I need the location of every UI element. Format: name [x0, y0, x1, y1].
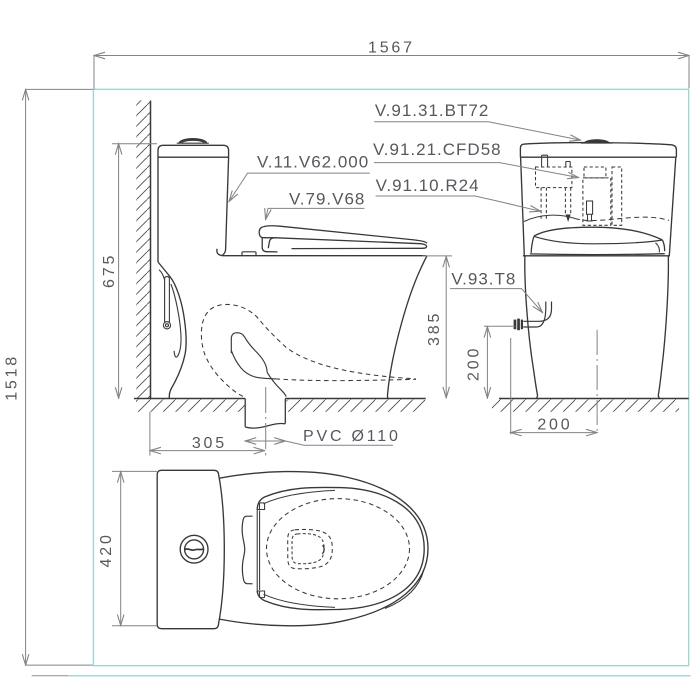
svg-text:200: 200 — [465, 346, 482, 381]
svg-text:V.91.21.CFD58: V.91.21.CFD58 — [373, 140, 502, 159]
svg-text:305: 305 — [192, 435, 227, 452]
svg-text:675: 675 — [101, 253, 118, 288]
svg-text:V.11.V62.000: V.11.V62.000 — [257, 153, 369, 172]
svg-text:V.79.V68: V.79.V68 — [289, 189, 365, 208]
svg-text:PVC Ø110: PVC Ø110 — [303, 428, 401, 445]
svg-text:200: 200 — [537, 416, 572, 433]
svg-text:420: 420 — [98, 532, 115, 567]
svg-text:1518: 1518 — [4, 354, 21, 401]
svg-text:V.91.10.R24: V.91.10.R24 — [376, 176, 480, 195]
svg-text:V.93.T8: V.93.T8 — [451, 269, 516, 288]
svg-text:V.91.31.BT72: V.91.31.BT72 — [375, 101, 489, 120]
svg-text:1567: 1567 — [368, 40, 415, 57]
svg-text:385: 385 — [426, 311, 443, 346]
